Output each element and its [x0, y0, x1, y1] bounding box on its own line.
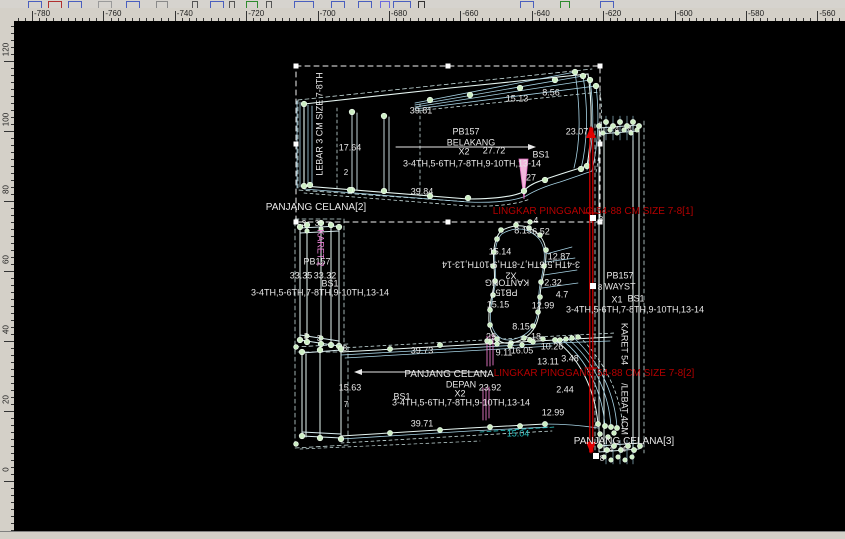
ruler-label: -620	[605, 9, 621, 18]
ruler-tick	[175, 11, 176, 21]
ruler-label: -680	[391, 9, 407, 18]
red-dimension-line[interactable]	[585, 126, 599, 459]
ruler-tick	[32, 11, 33, 21]
ruler-label: -720	[248, 9, 264, 18]
drawing-canvas[interactable]: 39.8115.138.5623.07PB157BELAKANGX227.72B…	[14, 21, 845, 531]
pattern-piece-kantong[interactable]	[488, 223, 579, 346]
dart-mark	[483, 335, 493, 420]
pattern-piece-belakang[interactable]	[297, 69, 602, 206]
cad-application-window: -780-760-740-720-700-680-660-640-620-600…	[0, 0, 845, 539]
ruler-tick	[603, 11, 604, 21]
ruler-tick	[103, 11, 104, 21]
ruler-label: -780	[34, 9, 50, 18]
ruler-tick	[532, 11, 533, 21]
ruler-tick	[817, 11, 818, 21]
ruler-label: 120	[2, 38, 11, 62]
ruler-tick	[318, 11, 319, 21]
grain-arrow	[354, 369, 362, 375]
ruler-tick	[389, 11, 390, 21]
pattern-nodes[interactable]	[301, 69, 599, 201]
ruler-horizontal: -780-760-740-720-700-680-660-640-620-600…	[14, 8, 845, 21]
ruler-label: 80	[2, 178, 11, 202]
ruler-label: 0	[2, 458, 11, 482]
ruler-label: -740	[177, 9, 193, 18]
ruler-label: 100	[2, 108, 11, 132]
horizontal-scrollbar[interactable]	[0, 531, 845, 539]
ruler-label: -640	[534, 9, 550, 18]
ruler-label: 20	[2, 388, 11, 412]
ruler-label: -560	[819, 9, 835, 18]
ruler-vertical: 120100806040200	[0, 21, 14, 531]
ruler-label: 60	[2, 248, 11, 272]
ruler-tick	[675, 11, 676, 21]
ruler-label: -660	[462, 9, 478, 18]
pattern-piece-waistband[interactable]	[595, 116, 644, 464]
ruler-tick	[746, 11, 747, 21]
pattern-drawing	[14, 21, 845, 531]
ruler-tick	[246, 11, 247, 21]
ruler-corner	[0, 8, 15, 21]
ruler-label: -600	[677, 9, 693, 18]
grain-arrow	[528, 144, 536, 150]
pattern-piece-strip[interactable]	[295, 219, 344, 352]
ruler-label: -760	[105, 9, 121, 18]
ruler-tick	[460, 11, 461, 21]
ruler-label: 40	[2, 318, 11, 342]
pattern-piece-depan[interactable]	[294, 333, 623, 449]
ruler-label: -700	[320, 9, 336, 18]
ruler-label: -580	[748, 9, 764, 18]
